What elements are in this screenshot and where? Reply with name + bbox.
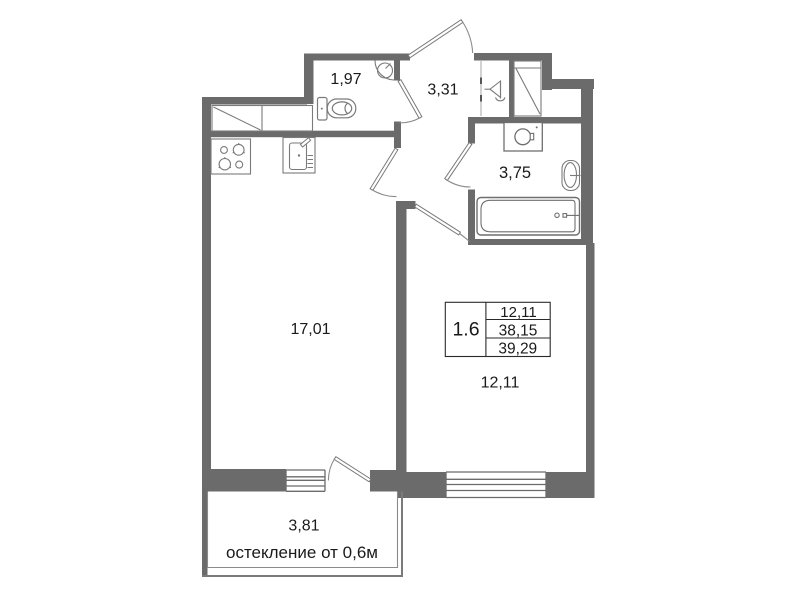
svg-text:38,15: 38,15: [499, 322, 538, 339]
svg-text:17,01: 17,01: [290, 321, 330, 338]
svg-text:3,81: 3,81: [288, 518, 319, 535]
svg-text:12,11: 12,11: [500, 304, 536, 321]
svg-text:1.6: 1.6: [452, 319, 479, 341]
svg-text:12,11: 12,11: [481, 375, 520, 392]
svg-text:1,97: 1,97: [330, 71, 361, 88]
svg-text:остекление от 0,6м: остекление от 0,6м: [226, 543, 378, 562]
svg-text:3,75: 3,75: [499, 164, 531, 182]
svg-text:3,31: 3,31: [427, 82, 458, 99]
svg-text:39,29: 39,29: [498, 341, 537, 358]
